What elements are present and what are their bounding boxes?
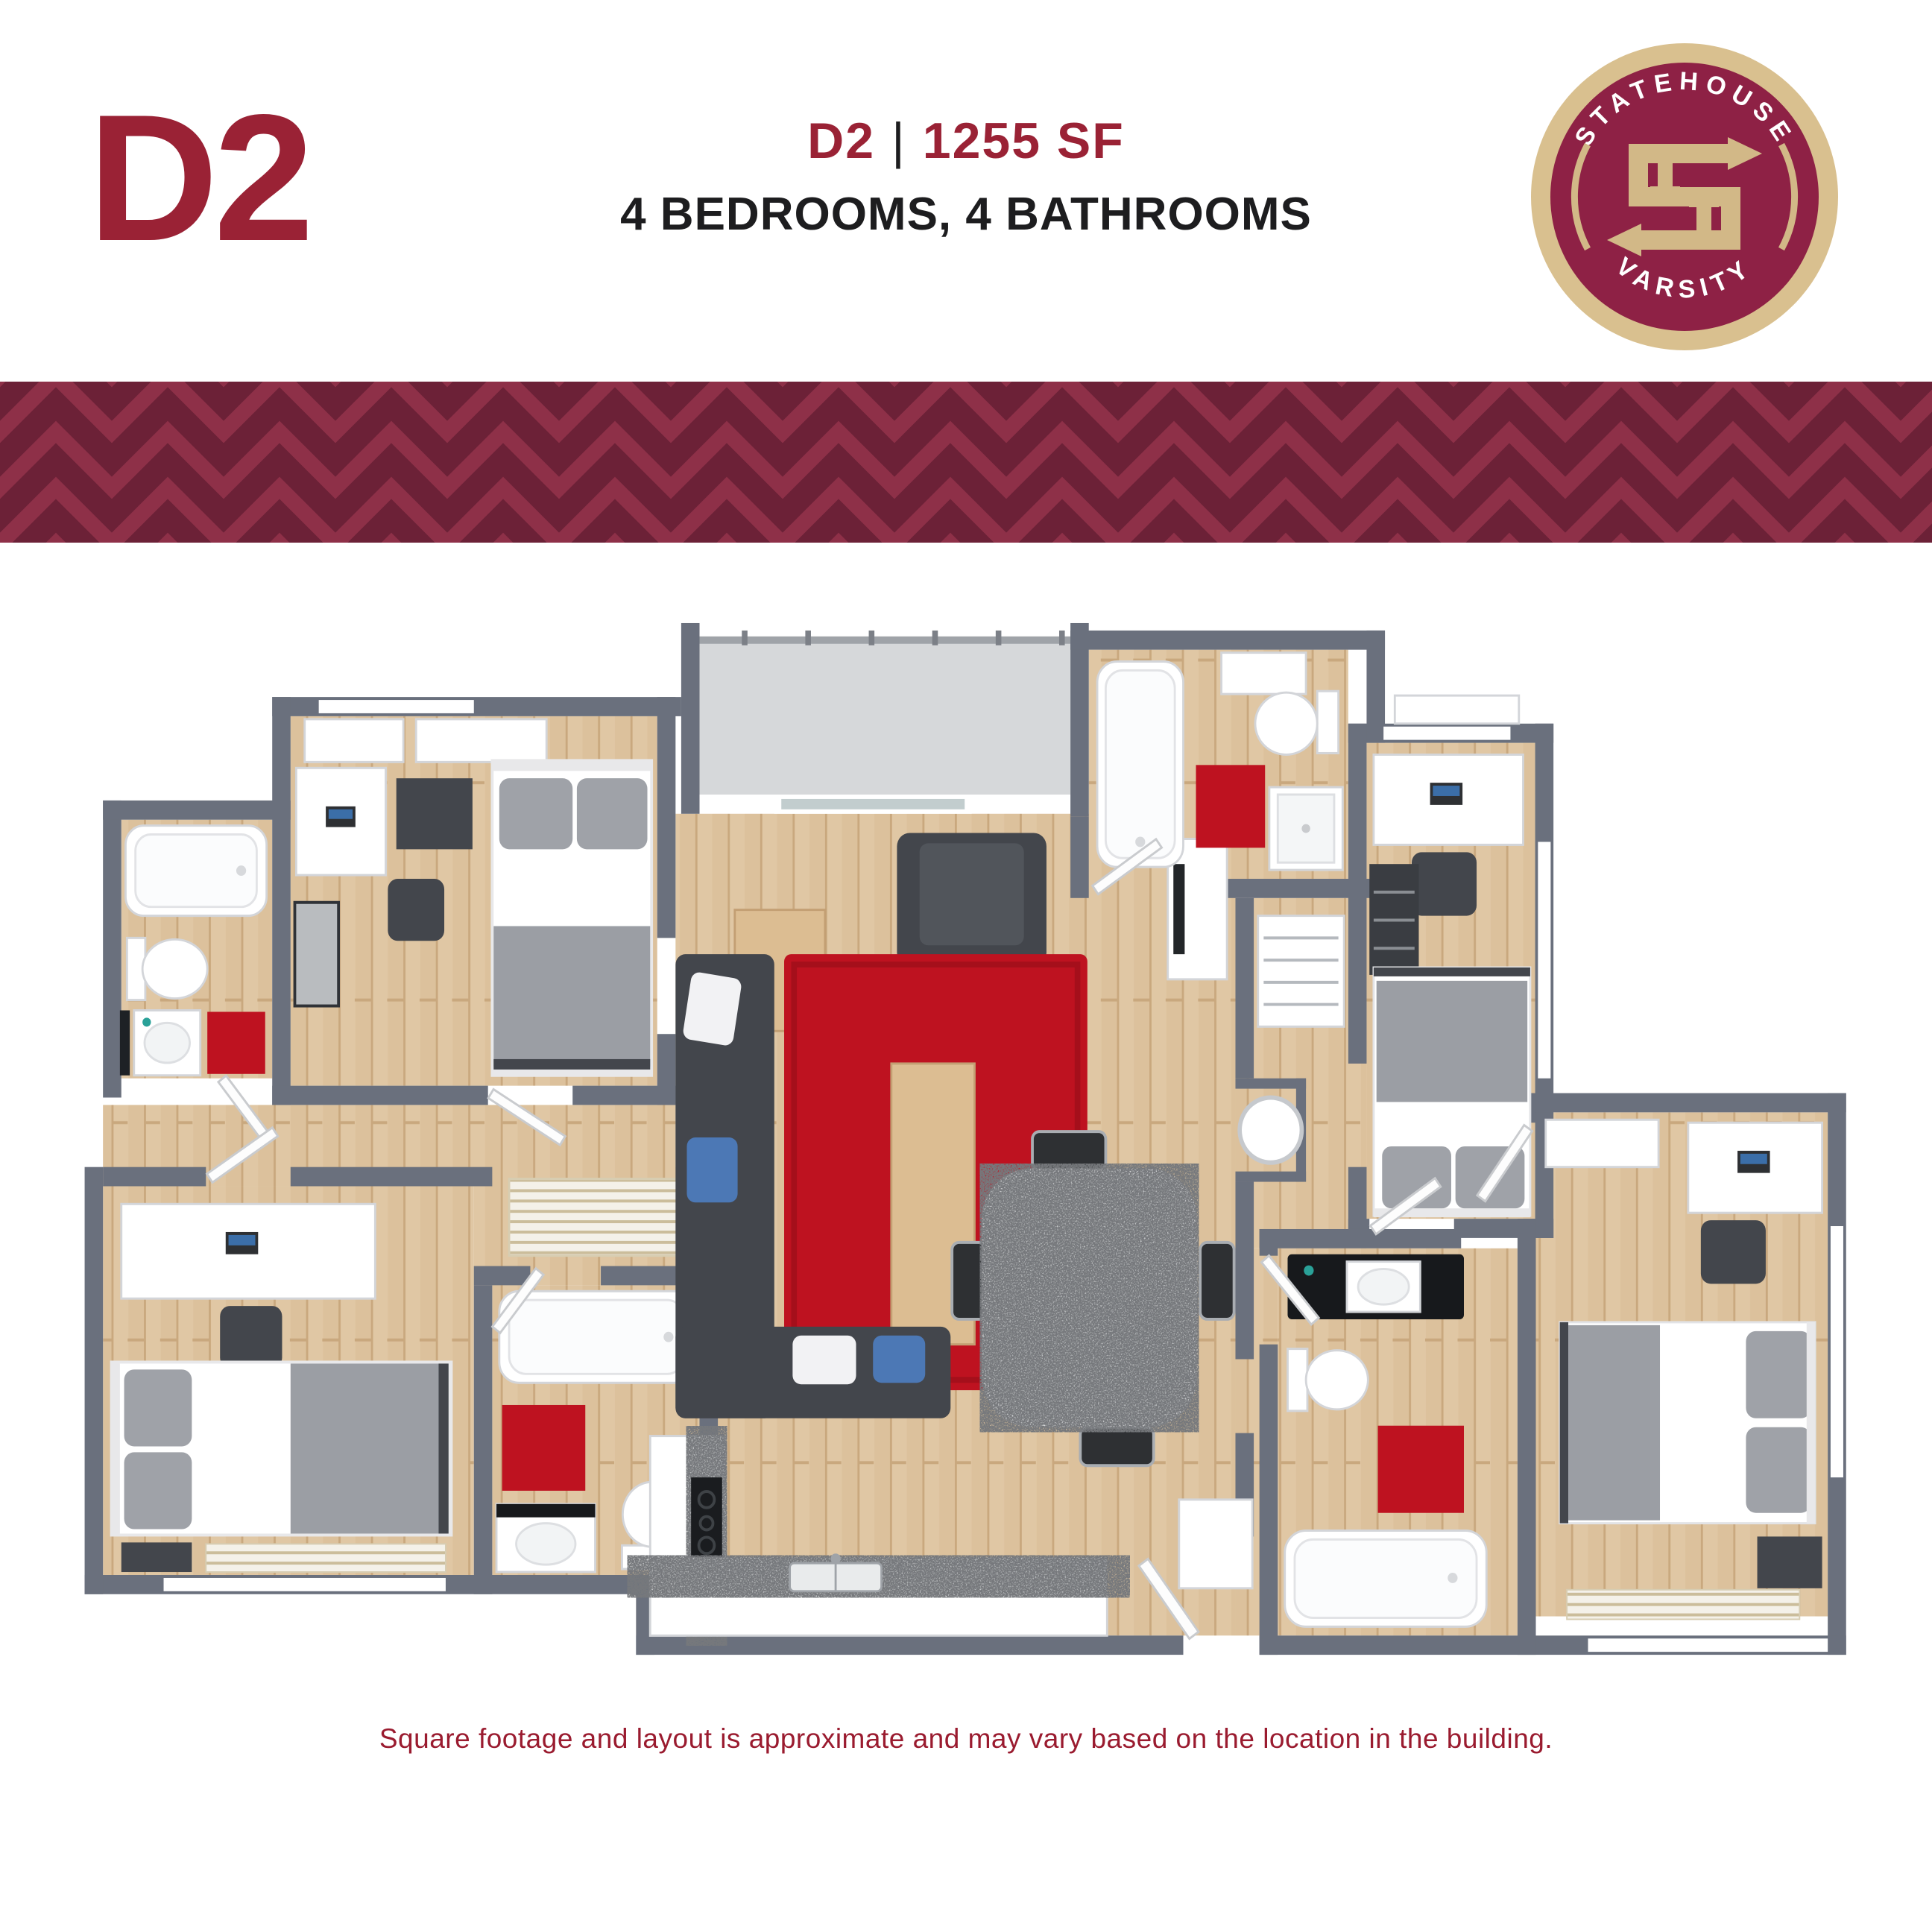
nightstand: [397, 778, 473, 849]
chevron-banner: [0, 382, 1932, 543]
floor-plan: [79, 620, 1856, 1662]
disclaimer-text: Square footage and layout is approximate…: [0, 1723, 1932, 1755]
shelf: [120, 1011, 130, 1076]
radiator: [206, 1544, 446, 1572]
blue-pillow: [873, 1336, 925, 1383]
sink: [134, 1011, 201, 1076]
office-chair: [220, 1306, 282, 1368]
red-rug: [1196, 765, 1266, 847]
bed: [490, 759, 653, 1076]
balcony: [700, 631, 1071, 814]
desk: [1374, 754, 1524, 845]
desk: [1688, 1123, 1822, 1213]
desk: [296, 768, 385, 875]
closet: [1395, 695, 1519, 724]
toilet: [1255, 691, 1339, 754]
office-chair: [1412, 852, 1477, 915]
dining-table: [982, 1169, 1197, 1427]
statehouse-varsity-logo: STATEHOUSE VARSITY: [1527, 39, 1843, 355]
white-pillow: [792, 1336, 856, 1384]
bed: [1374, 967, 1530, 1217]
vanity-sink: [1287, 1254, 1464, 1319]
toilet: [127, 938, 207, 1000]
divider: |: [875, 113, 923, 169]
toilet: [1287, 1349, 1368, 1411]
media-cabinet: [294, 903, 338, 1006]
balcony-railing: [700, 637, 1071, 644]
sink: [496, 1504, 595, 1572]
desk: [121, 1204, 376, 1298]
bathtub: [125, 826, 266, 916]
dining-chair: [1032, 1131, 1105, 1170]
water-heater: [1240, 1098, 1301, 1163]
armchair: [897, 833, 1046, 966]
counter-bottom: [650, 1594, 1107, 1636]
dining-chair: [1200, 1243, 1234, 1319]
bathtub: [1097, 662, 1183, 868]
white-pillow: [682, 971, 742, 1046]
hall-closet: [1258, 916, 1344, 1027]
plan-code: D2: [807, 113, 875, 169]
square-footage: 1255 SF: [923, 113, 1125, 169]
bed: [1560, 1322, 1815, 1524]
blue-pillow: [686, 1137, 737, 1202]
dining-chair: [1080, 1427, 1153, 1466]
shower: [1269, 787, 1342, 870]
sliding-glass-door: [781, 799, 965, 809]
tv: [1173, 864, 1184, 954]
logo-sh-monogram: [1607, 137, 1762, 256]
office-chair: [388, 879, 444, 941]
closet: [416, 719, 546, 763]
radiator: [1567, 1590, 1799, 1620]
office-chair: [1701, 1220, 1766, 1284]
red-rug: [207, 1011, 265, 1073]
red-rug: [1378, 1426, 1464, 1513]
nightstand: [1758, 1536, 1822, 1588]
dresser: [1369, 864, 1418, 975]
bathtub: [499, 1291, 694, 1383]
red-rug: [502, 1405, 586, 1491]
entry-closet: [1179, 1500, 1252, 1588]
sink: [1222, 653, 1307, 695]
closet: [1546, 1120, 1658, 1167]
nightstand: [121, 1542, 192, 1572]
bed: [110, 1360, 453, 1536]
bathtub: [1285, 1531, 1487, 1627]
closet: [305, 719, 403, 763]
